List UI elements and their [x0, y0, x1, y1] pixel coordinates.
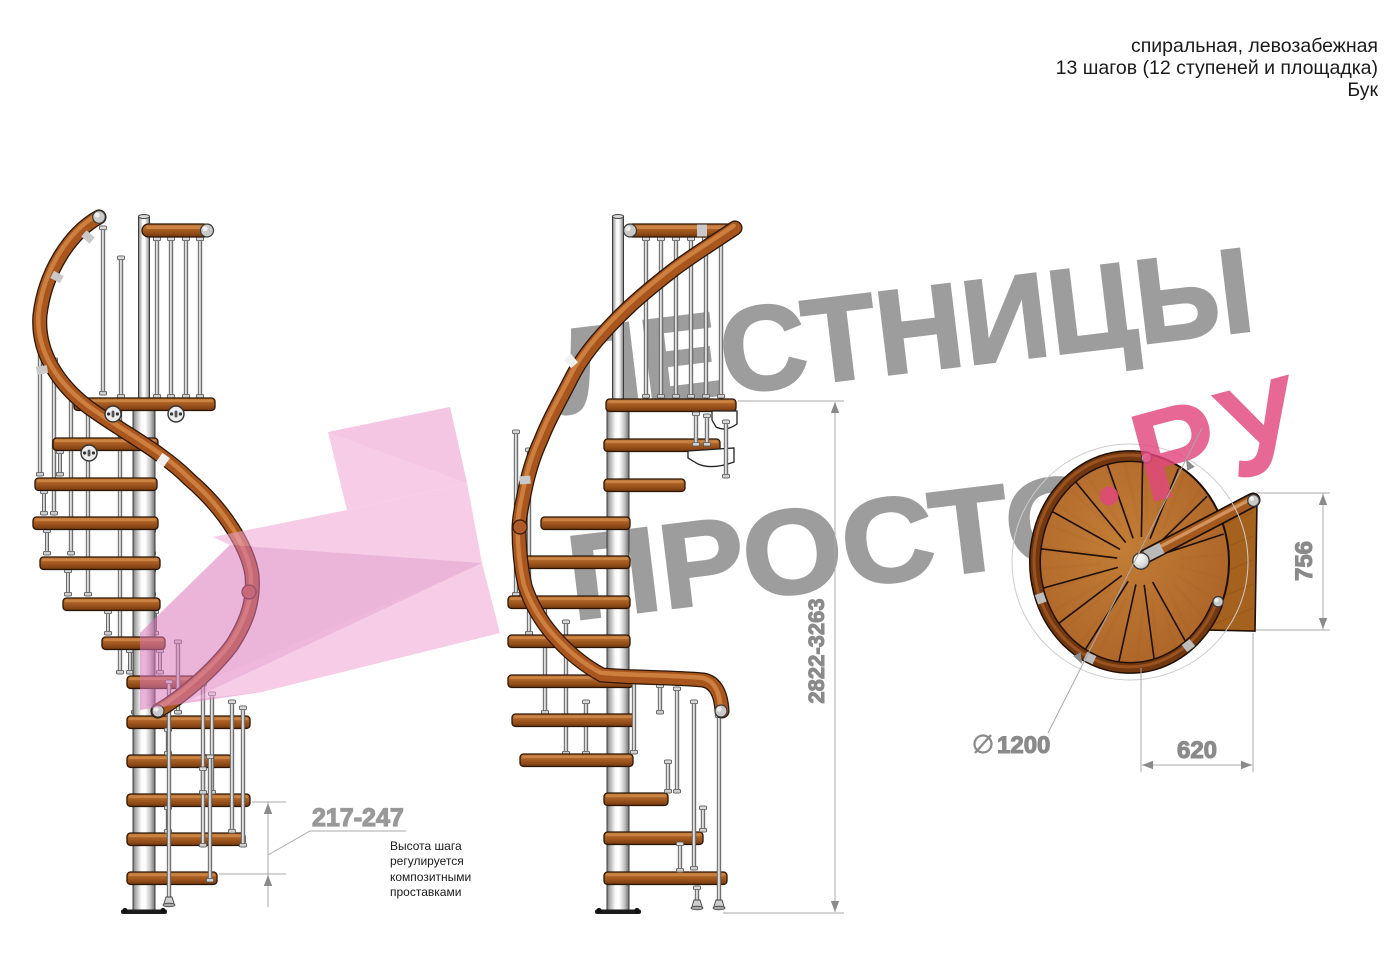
- svg-text:13 шагов (12 ступеней и площад: 13 шагов (12 ступеней и площадка): [1056, 57, 1378, 79]
- svg-text:проставками: проставками: [390, 885, 461, 899]
- svg-text:регулируется: регулируется: [390, 854, 464, 868]
- svg-text:217-247: 217-247: [312, 804, 404, 832]
- svg-text:спиральная, левозабежная: спиральная, левозабежная: [1131, 35, 1378, 57]
- svg-text:1200: 1200: [997, 732, 1050, 759]
- svg-text:2822-3263: 2822-3263: [804, 598, 829, 703]
- svg-text:620: 620: [1177, 737, 1217, 764]
- svg-text:756: 756: [1291, 541, 1318, 581]
- svg-text:Бук: Бук: [1347, 79, 1378, 101]
- svg-text:Высота шага: Высота шага: [390, 839, 462, 853]
- svg-text:композитными: композитными: [390, 870, 471, 884]
